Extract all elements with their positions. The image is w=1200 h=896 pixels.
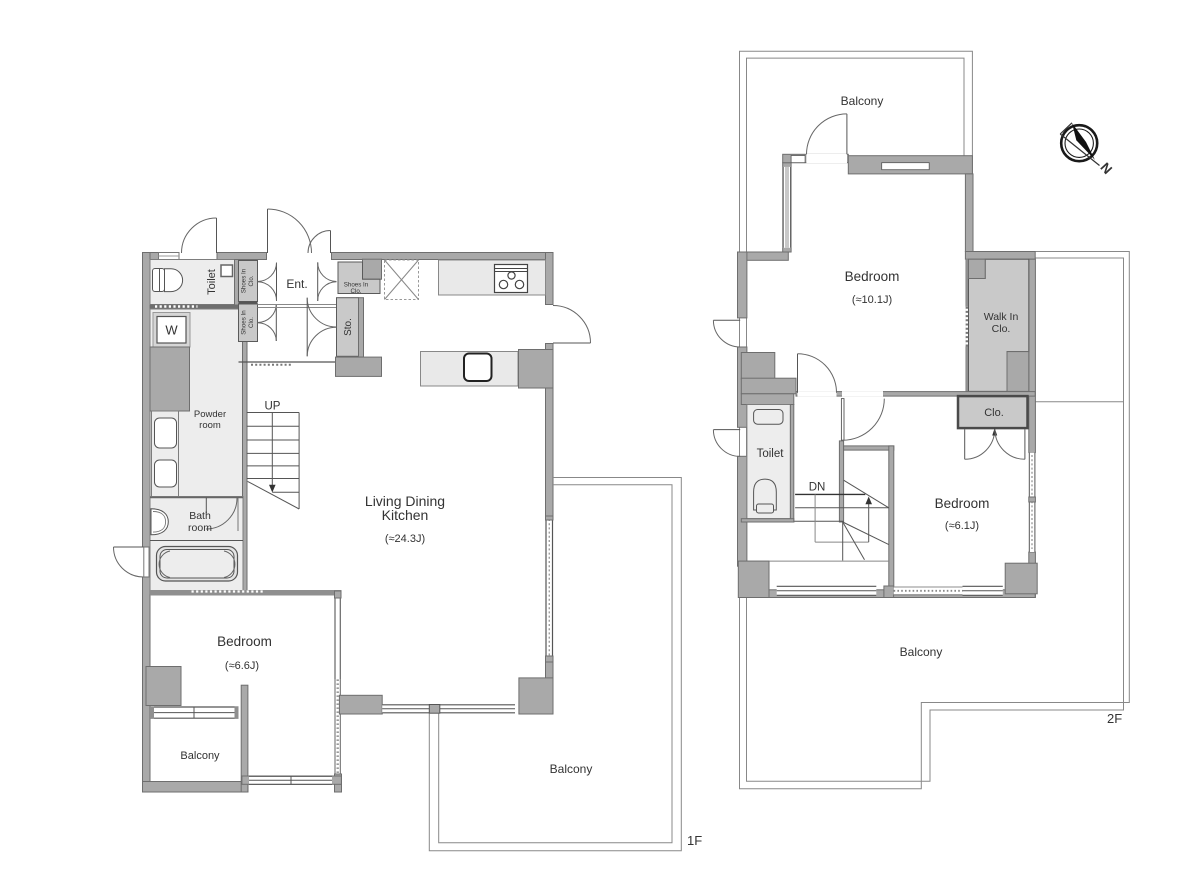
- svg-text:Bath: Bath: [189, 510, 211, 522]
- svg-text:Balcony: Balcony: [550, 762, 593, 776]
- svg-text:Clo.: Clo.: [248, 275, 255, 286]
- svg-text:room: room: [188, 522, 212, 534]
- svg-text:(≈24.3J): (≈24.3J): [385, 533, 425, 545]
- svg-text:Shoes In: Shoes In: [241, 310, 248, 335]
- svg-text:W: W: [165, 323, 178, 338]
- svg-text:Bedroom: Bedroom: [845, 269, 900, 284]
- svg-text:Toilet: Toilet: [757, 448, 785, 460]
- svg-text:(≈6.6J): (≈6.6J): [225, 660, 259, 672]
- svg-text:Walk In: Walk In: [984, 311, 1019, 323]
- svg-text:Clo.: Clo.: [992, 323, 1011, 335]
- svg-text:(≈6.1J): (≈6.1J): [945, 520, 979, 532]
- svg-text:Bedroom: Bedroom: [217, 634, 272, 649]
- svg-text:Powder: Powder: [194, 409, 226, 420]
- svg-text:Sto.: Sto.: [343, 318, 354, 336]
- svg-text:Clo.: Clo.: [350, 288, 361, 295]
- svg-text:Toilet: Toilet: [206, 269, 218, 295]
- svg-text:Bedroom: Bedroom: [935, 496, 990, 511]
- svg-text:DN: DN: [809, 482, 826, 494]
- svg-text:UP: UP: [265, 401, 281, 413]
- svg-text:Shoes In: Shoes In: [241, 268, 248, 293]
- svg-text:2F: 2F: [1107, 711, 1122, 726]
- svg-text:1F: 1F: [687, 833, 702, 848]
- svg-text:Balcony: Balcony: [841, 94, 884, 108]
- svg-text:Clo.: Clo.: [248, 317, 255, 328]
- svg-text:Clo.: Clo.: [984, 407, 1004, 419]
- svg-text:Kitchen: Kitchen: [382, 507, 429, 523]
- svg-text:room: room: [199, 420, 221, 431]
- svg-text:Balcony: Balcony: [180, 750, 220, 762]
- svg-text:Ent.: Ent.: [286, 277, 307, 291]
- svg-text:(≈10.1J): (≈10.1J): [852, 294, 892, 306]
- svg-text:Balcony: Balcony: [900, 645, 943, 659]
